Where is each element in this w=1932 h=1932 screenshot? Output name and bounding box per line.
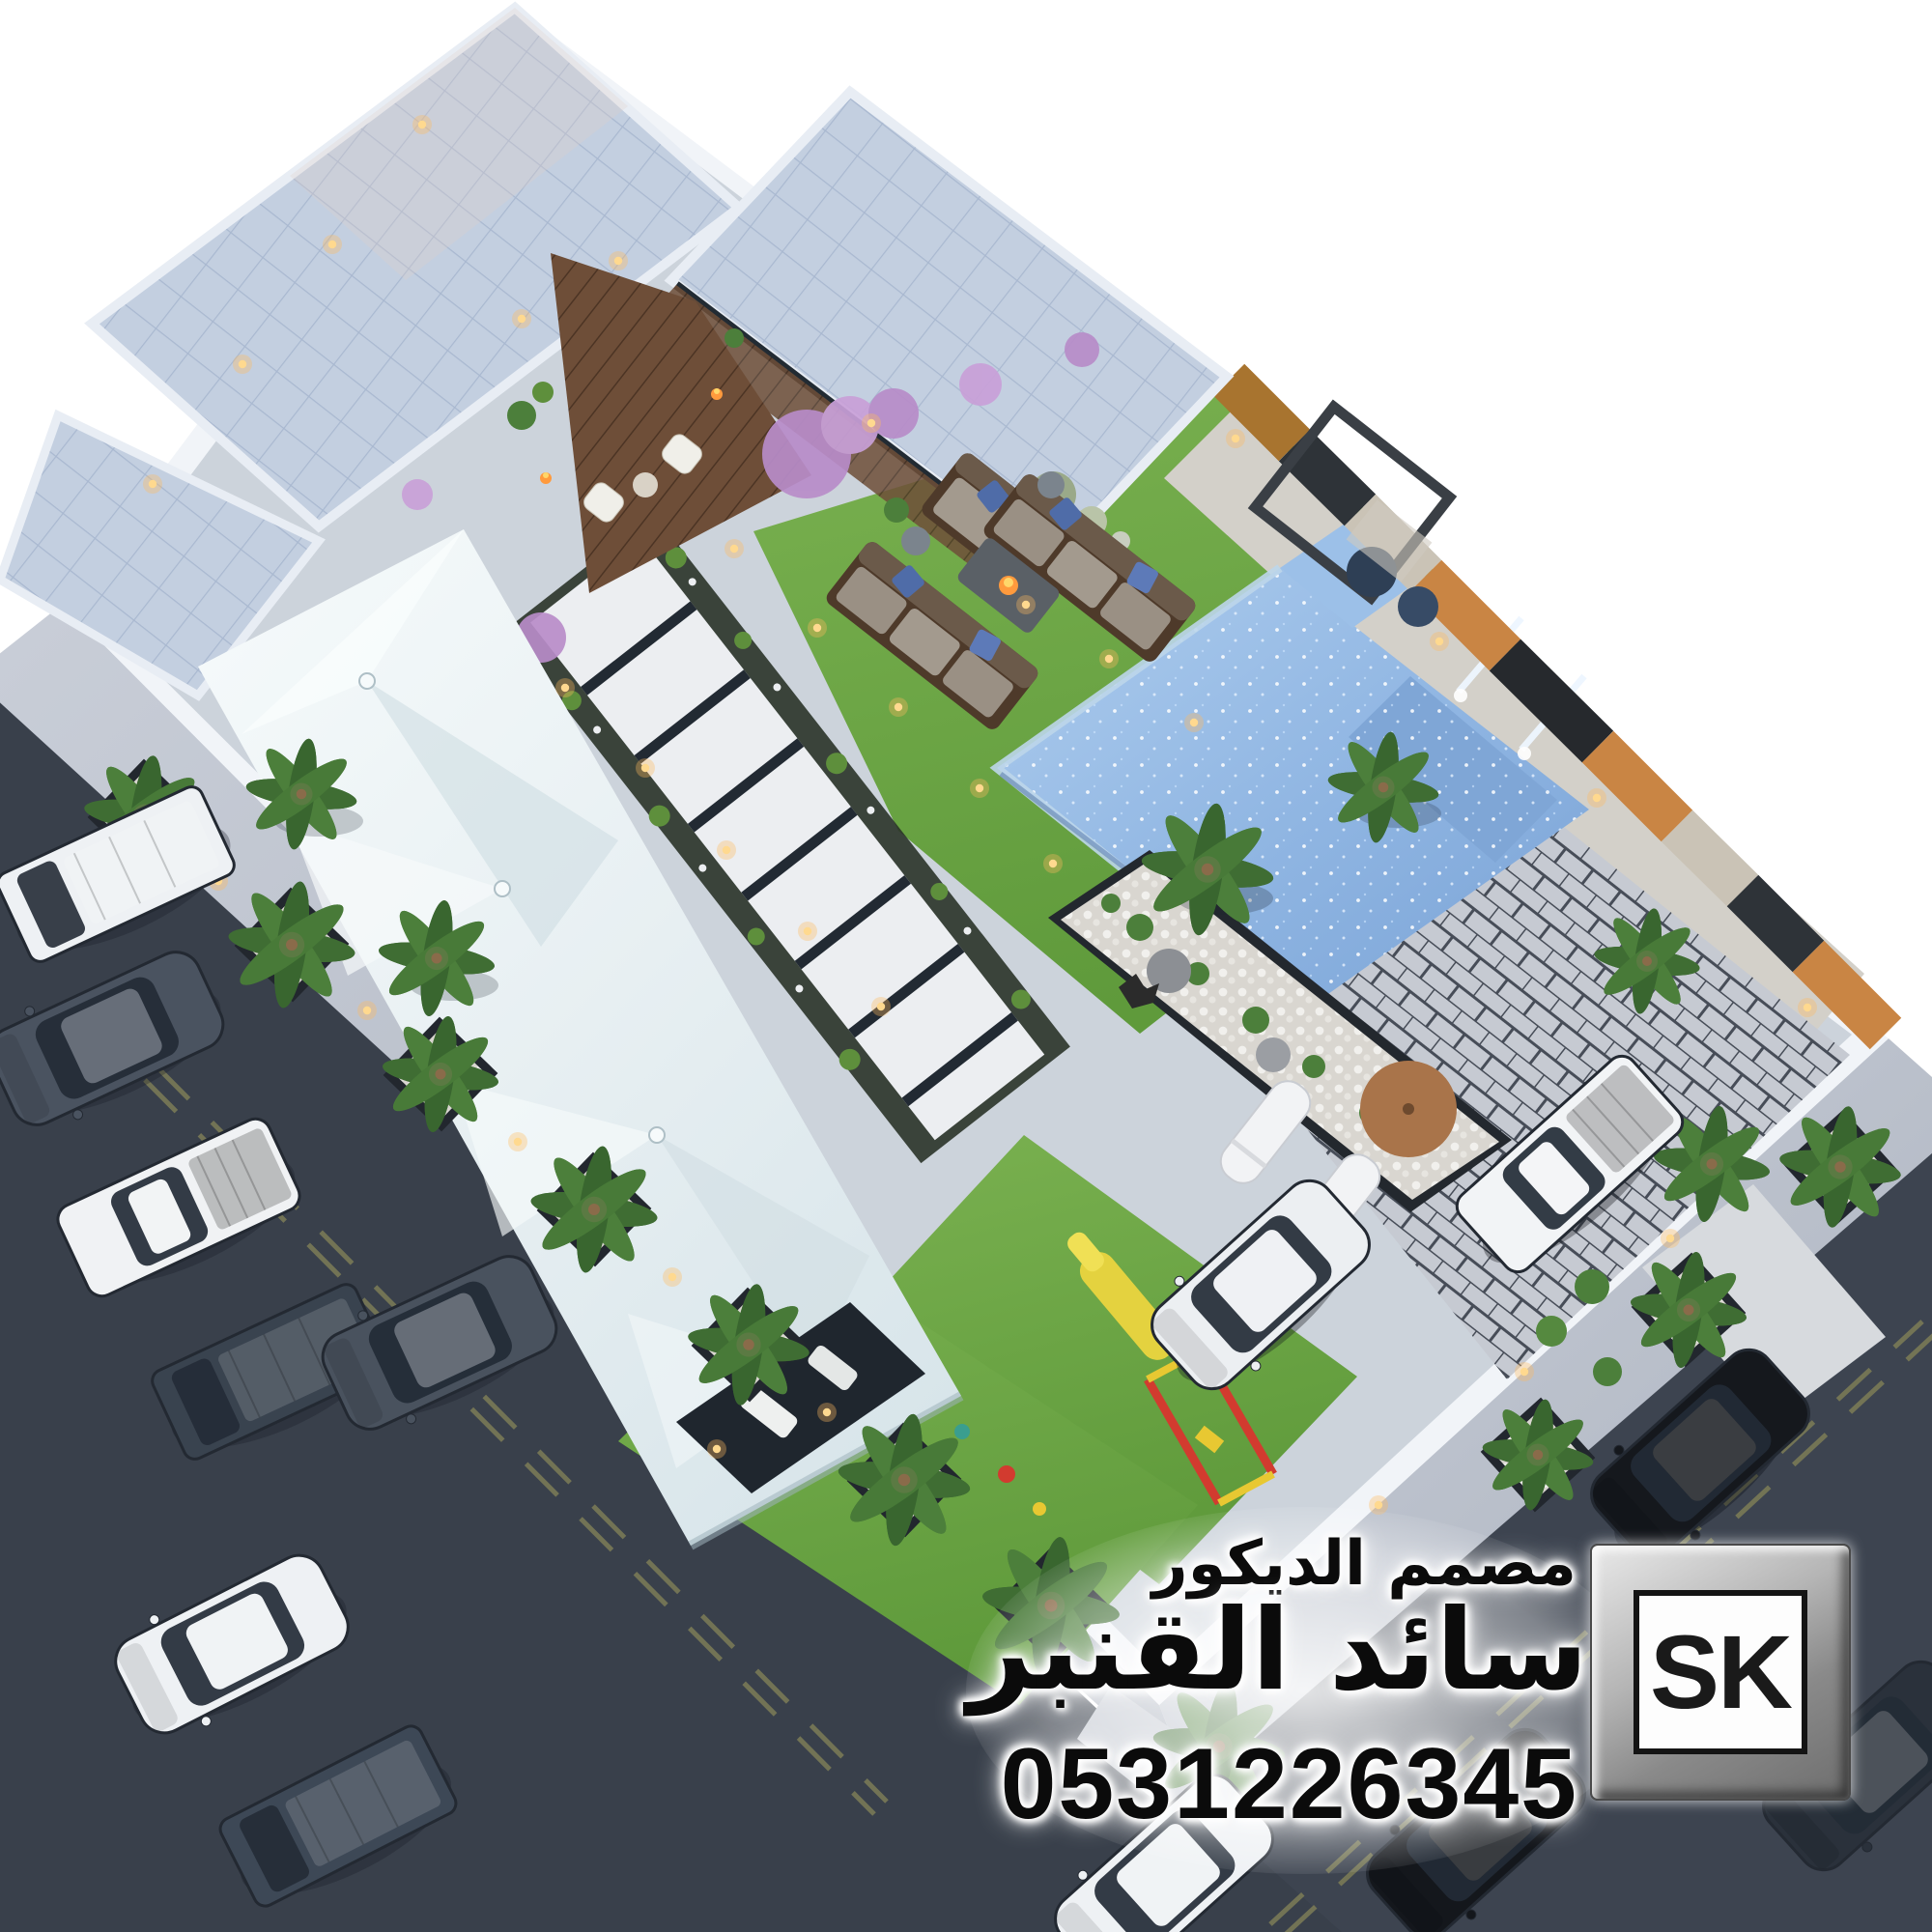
- side-table: [901, 526, 930, 555]
- villa-landscape-render: مصمم الديكور سائد القنبر 0531226345 SK: [0, 0, 1932, 1932]
- bean-bag: [1398, 586, 1438, 627]
- tricycle-toy: [998, 1465, 1015, 1483]
- sphere-rock: [1256, 1037, 1291, 1072]
- render-canvas: [0, 0, 1932, 1932]
- toy: [954, 1424, 970, 1439]
- toy: [1033, 1502, 1046, 1516]
- side-table: [1037, 471, 1065, 498]
